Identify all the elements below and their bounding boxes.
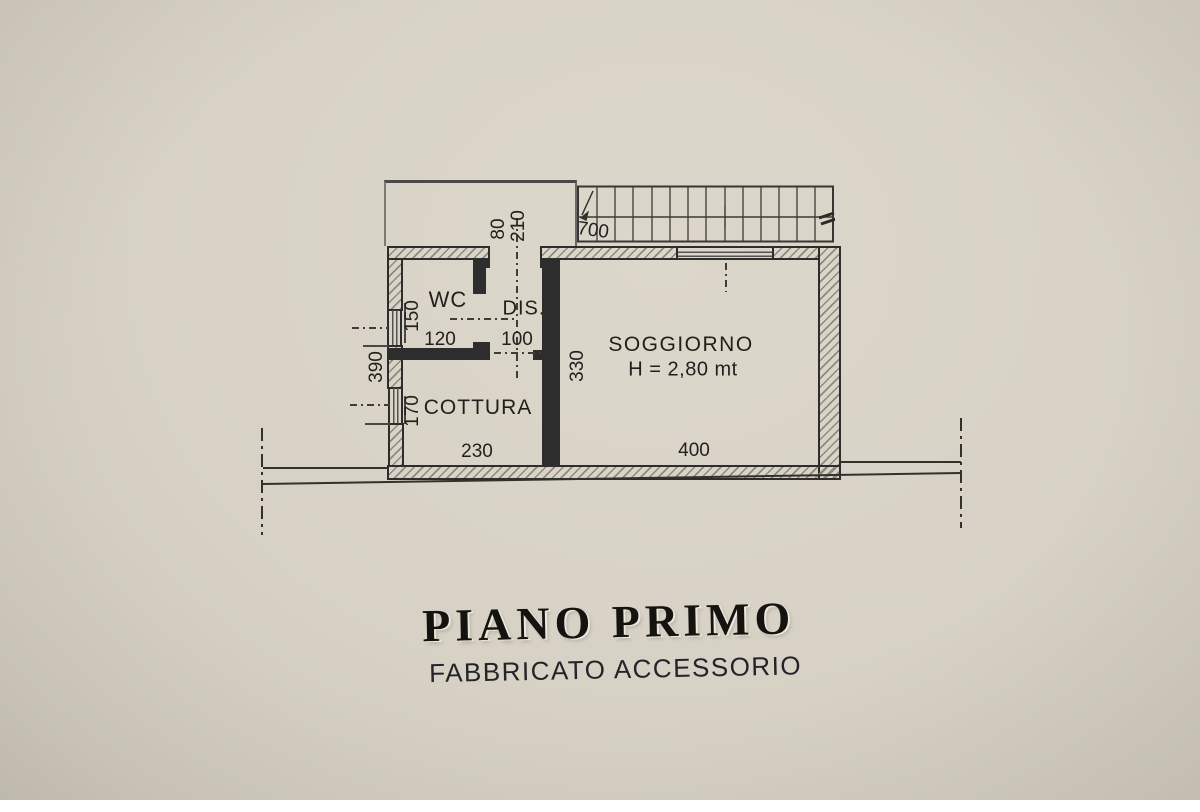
wall-top-middle (540, 246, 678, 260)
dim-label-stairs: 700 (576, 218, 610, 244)
window-wc (387, 310, 402, 346)
wall-left-lower (388, 423, 404, 467)
fence-line-right-upper (840, 461, 961, 463)
room-label-dis: DIS. (503, 298, 546, 321)
dim-label-cottura-depth: 170 (402, 395, 424, 427)
dim-label-soggiorno-depth: 330 (567, 350, 589, 382)
wall-left-upper (387, 258, 403, 311)
centerline-cottura-window (350, 404, 390, 406)
window-cottura (388, 388, 403, 424)
dim-label-wc-depth: 150 (402, 300, 424, 332)
boundary-line-left (261, 428, 263, 535)
door-jamb-balcony-left (482, 258, 490, 268)
dim-label-wc-width: 120 (424, 329, 456, 351)
page-subtitle: FABBRICATO ACCESSORIO (429, 650, 803, 689)
dim-label-dis-width: 100 (501, 329, 533, 351)
staircase (577, 185, 835, 243)
dim-label-cottura-width: 230 (461, 441, 493, 463)
door-jamb-balcony-right (540, 258, 548, 268)
tick-cottura-window (365, 423, 390, 425)
dim-label-left-side: 390 (366, 351, 388, 383)
balcony-outline (384, 180, 577, 246)
fence-line-left-upper (263, 467, 388, 469)
room-label-wc: WC (429, 287, 468, 313)
stair-direction-arrow (582, 191, 593, 215)
scanned-floor-plan-page: 80 210 700 150 120 100 390 170 330 230 4… (0, 0, 1200, 800)
wall-top-right (772, 246, 820, 260)
centerline-wc-window (352, 327, 388, 329)
room-label-soggiorno: SOGGIORNO (608, 333, 753, 357)
window-soggiorno (678, 246, 772, 260)
wall-wc-dis-lower (473, 342, 490, 360)
centerline-dis-door (494, 352, 541, 354)
tick-wc-window (363, 345, 388, 347)
room-note-ceiling-height: H = 2,80 mt (628, 359, 737, 382)
wall-dis-soggiorno (542, 260, 560, 465)
page-title: PIANO PRIMO (422, 591, 796, 652)
dim-label-balcony-depth: 210 (508, 210, 530, 242)
dim-label-soggiorno-width: 400 (678, 440, 710, 462)
centerline-soggiorno-window (725, 263, 727, 292)
dim-label-balcony-door: 80 (488, 218, 510, 239)
room-label-cottura: COTTURA (424, 396, 533, 420)
wall-right (818, 246, 841, 480)
paper-vignette (0, 0, 1200, 800)
title-block: PIANO PRIMO FABBRICATO ACCESSORIO (0, 0, 1200, 812)
